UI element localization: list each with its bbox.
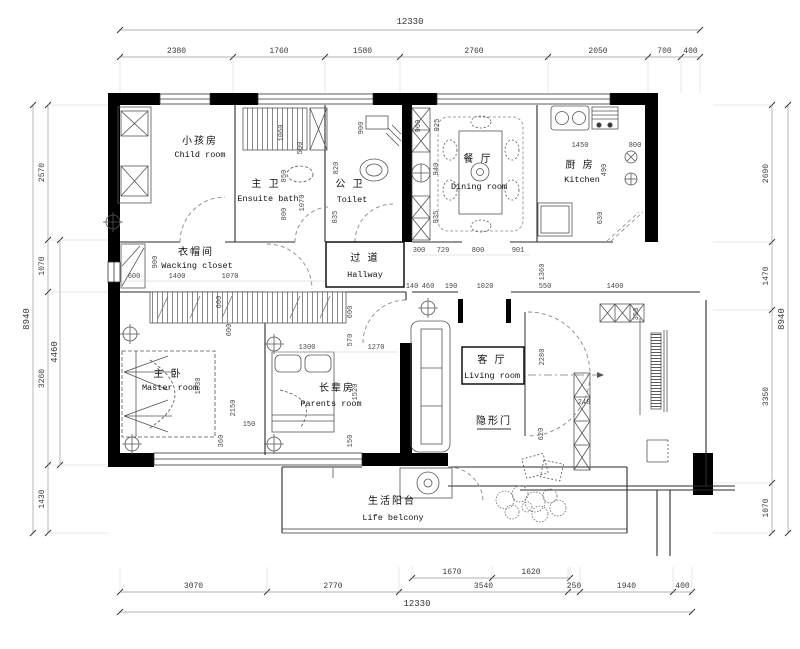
interior-dim: 570 [347, 334, 355, 347]
top-value: 1760 [269, 47, 288, 56]
door-balcony [448, 467, 483, 502]
floorplan-page: 1233023801760158027602050700400894044602… [0, 0, 800, 649]
left-total-value: 8940 [22, 308, 32, 330]
right-value: 3350 [762, 387, 771, 406]
wall-block-br [693, 453, 713, 495]
interior-dim: 600 [128, 273, 141, 281]
room-label-ensuite-bath-en: Ensuite bath [237, 194, 298, 204]
interior-dim: 900 [152, 256, 160, 269]
interior-dim: 460 [422, 283, 435, 291]
room-label-walking-closet-en: Wacking closet [161, 261, 232, 271]
interior-dim: 1300 [299, 344, 316, 352]
door-hidden-swing [528, 312, 590, 436]
interior-dim: 550 [539, 283, 552, 291]
interior-dim: 140 [406, 283, 419, 291]
room-label-living-room-zh: 客 厅 [477, 353, 506, 366]
floorplan-canvas: 1233023801760158027602050700400894044602… [0, 0, 800, 649]
dining-table [438, 116, 523, 232]
door-closet [267, 244, 312, 289]
room-label-master-room-en: Master room [142, 383, 198, 393]
room-box-hallway [326, 242, 404, 287]
interior-dim: 820 [333, 162, 341, 175]
room-label-toilet-zh: 公 卫 [335, 179, 364, 190]
wall-left-lower [108, 282, 120, 453]
wall-living-west [400, 343, 412, 463]
top-total-value: 12330 [396, 17, 423, 27]
room-label-hallway-en: Hallway [347, 270, 383, 280]
bottom-value: 2770 [323, 582, 342, 591]
interior-dim: 940 [433, 163, 441, 176]
nightstand [120, 324, 140, 344]
room-label-parents-room-en: Parents room [300, 399, 361, 409]
plant [496, 486, 566, 522]
interior-dim: 500 [297, 142, 305, 155]
top-value: 2050 [588, 47, 607, 56]
interior-dim: 350 [633, 308, 641, 321]
interior-dim: 800 [629, 142, 642, 150]
left-value: 3260 [38, 369, 47, 388]
interior-dim: 1400 [169, 273, 186, 281]
room-label-toilet-en: Toilet [337, 195, 368, 205]
wall-stem [402, 105, 412, 242]
tv-screen [651, 333, 661, 409]
interior-dim: 800 [281, 208, 289, 221]
wall-corner-bl [108, 453, 154, 467]
room-label-dining-room-en: Dining room [451, 182, 507, 192]
interior-dim: 1360 [539, 264, 547, 281]
interior-dim: 901 [512, 247, 525, 255]
wall-stub-1 [458, 299, 463, 323]
interior-dim: 600 [216, 296, 224, 309]
top-value: 1580 [353, 47, 372, 56]
bottom-total-value: 12330 [403, 599, 430, 609]
right-value: 1070 [762, 498, 771, 517]
fridge [538, 203, 572, 236]
interior-dim: 240 [578, 399, 591, 407]
right-value: 2690 [762, 164, 771, 183]
interior-dim: 800 [472, 247, 485, 255]
door-parents [363, 300, 406, 343]
bottom-inner-value: 1620 [521, 568, 540, 577]
sofa [411, 321, 450, 452]
top-value: 700 [657, 47, 672, 56]
left-mid-value: 4460 [50, 341, 60, 363]
interior-dim: 850 [281, 170, 289, 183]
interior-dim: 150 [243, 421, 256, 429]
room-label-walking-closet-zh: 衣帽间 [178, 245, 214, 258]
room-label-parents-room-zh: 长辈房 [319, 381, 355, 394]
room-label-child-room-en: Child room [174, 150, 225, 160]
interior-dim: 925 [434, 119, 442, 132]
room-label-life-balcony-en: Life belcony [362, 513, 423, 523]
interior-dim: 935 [433, 211, 441, 224]
bottom-value: 3070 [184, 582, 203, 591]
interior-dim: 900 [358, 122, 366, 135]
interior-dim: 1060 [278, 125, 286, 142]
interior-dim: 1450 [572, 142, 589, 150]
interior-dim: 1020 [477, 283, 494, 291]
interior-dim: 150 [347, 435, 355, 448]
left-value: 1070 [38, 256, 47, 275]
room-label-child-room-zh: 小孩房 [182, 134, 218, 147]
interior-dim: 300 [413, 247, 426, 255]
top-value: 400 [683, 47, 698, 56]
nightstand [264, 434, 284, 454]
room-label-ensuite-bath-zh: 主 卫 [251, 178, 280, 190]
grid-marker [418, 298, 438, 318]
interior-dim: 2280 [539, 349, 547, 366]
bottom-inner-value: 1670 [442, 568, 461, 577]
interior-dim: 729 [437, 247, 450, 255]
bottom-value: 250 [567, 582, 582, 591]
right-total-value: 8940 [777, 308, 787, 330]
wall-top-3 [373, 93, 437, 105]
toilet-fixtures [360, 116, 401, 181]
interior-dim: 835 [332, 211, 340, 224]
interior-dim: 360 [218, 435, 226, 448]
wall-top-1 [108, 93, 160, 105]
interior-dim: 1400 [607, 283, 624, 291]
interior-dim: 1270 [368, 344, 385, 352]
interior-dim: 620 [538, 428, 546, 441]
room-label-hidden-door-zh: 隐形门 [476, 414, 512, 427]
left-value: 2570 [38, 163, 47, 182]
interior-dim: 2150 [230, 400, 238, 417]
wall-balcony-top [362, 453, 448, 466]
nightstand [264, 334, 284, 354]
room-label-hallway-zh: 过 道 [350, 251, 379, 264]
interior-dim: 1070 [299, 195, 307, 212]
interior-dim: 600 [226, 324, 234, 337]
room-label-kitchen-zh: 厨 房 [565, 158, 594, 171]
wall-stub-2 [506, 299, 511, 323]
room-label-dining-room-zh: 餐 厅 [463, 152, 492, 165]
kitchen-fixtures [538, 106, 643, 241]
bottom-value: 3540 [474, 582, 493, 591]
bottom-value: 400 [675, 582, 690, 591]
left-value: 1430 [38, 489, 47, 508]
room-label-life-balcony-zh: 生活阳台 [368, 494, 416, 507]
child-bed [118, 107, 151, 203]
room-label-kitchen-en: Kitchen [564, 175, 600, 185]
washing-machine [333, 468, 452, 498]
interior-dim: 600 [347, 306, 355, 319]
top-value: 2760 [464, 47, 483, 56]
interior-dim: 630 [597, 212, 605, 225]
interior-dim: 490 [601, 164, 609, 177]
bottom-value: 1940 [617, 582, 636, 591]
room-label-master-room-zh: 主 卧 [153, 367, 182, 380]
tv-wall [574, 304, 668, 470]
door-child [180, 197, 225, 242]
wall-kitchen-right [645, 93, 658, 242]
interior-dim: 960 [415, 120, 423, 133]
door-toilet [355, 204, 393, 242]
top-value: 2380 [167, 47, 186, 56]
interior-dim: 1070 [222, 273, 239, 281]
room-label-living-room-en: Living room [464, 371, 520, 381]
right-value: 1470 [762, 266, 771, 285]
interior-dim: 190 [445, 283, 458, 291]
wall-top-2 [210, 93, 258, 105]
